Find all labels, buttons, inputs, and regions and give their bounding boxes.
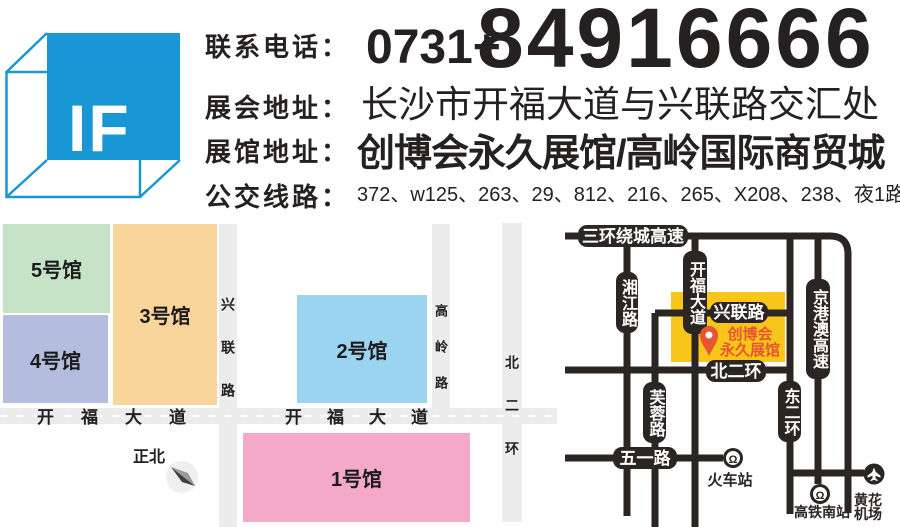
railway-station-label: 火车站 [699,474,761,488]
logo-text: IF [68,91,131,165]
compass-icon [164,459,200,495]
hall-3-label: 3号馆 [139,300,190,329]
hall-2: 2号馆 [297,295,427,403]
badge-north-2nd-ring: 北二环 [706,360,766,382]
airport-icon [864,464,885,485]
badge-kaifu-avenue: 开福大道 [683,251,707,334]
badge-east-2nd-ring: 东二环 [778,381,801,442]
railway-station-icon: Ω [723,448,743,468]
expo-address-value: 长沙市开福大道与兴联路交汇处 [361,86,879,123]
venue-name: 创博会 永久展馆 [718,327,782,359]
badge-jinggangao-expressway: 京港澳高速 [806,279,830,379]
phone-label: 联系电话： [205,34,350,60]
hall-4: 4号馆 [3,315,108,403]
svg-text:Ω: Ω [729,454,738,466]
road-label-kaifu-east: 开福大道 [285,409,453,426]
hall-5-label: 5号馆 [31,254,82,283]
badge-furong-road: 芙蓉路 [643,382,666,443]
venue-address-label: 展馆地址： [205,139,350,165]
north-label: 正北 [133,450,165,466]
expo-address-label: 展会地址： [205,95,350,121]
badge-wuyi-road: 五一路 [613,447,677,469]
hsr-station-label: 高铁南站 [791,505,853,519]
venue-name-line1: 创博会 [718,327,782,343]
road-label-kaifu-west: 开福大道 [37,409,213,426]
phone-number: 84916666 [477,0,875,80]
badge-xinglian-road: 兴联路 [710,302,768,323]
road-label-beierhuan: 北二环 [505,355,519,484]
hall-3: 3号馆 [113,224,217,405]
hall-2-label: 2号馆 [336,335,387,364]
hsr-station-icon: Ω [810,484,830,504]
airport-label: 黄花 机场 [854,493,894,521]
airport-label-line1: 黄花 [854,493,894,507]
badge-sanhuan-expressway: 三环绕城高速 [578,225,688,247]
airport-label-line2: 机场 [854,507,894,521]
hall-1: 1号馆 [243,433,470,522]
road-label-gaoling: 高岭路 [434,304,447,412]
if-cube-logo: IF [5,15,183,207]
badge-xiangjiang-road: 湘江路 [616,272,638,333]
area-map: Ω Ω 三环绕城高速 湘江路 开福大道 兴联路 京港澳高速 北二环 芙蓉路 五一… [560,215,900,527]
hall-4-label: 4号馆 [30,345,81,374]
road-label-xinglian: 兴联路 [221,297,235,426]
flyer-page: IF 联系电话： 0731+ 84916666 展会地址： 长沙市开福大道与兴联… [0,0,900,527]
svg-text:Ω: Ω [816,490,825,502]
hall-5: 5号馆 [3,224,110,313]
location-pin-icon [698,323,720,357]
venue-name-line2: 永久展馆 [718,343,782,359]
bus-lines-label: 公交线路： [205,184,350,210]
bus-lines-value: 372、w125、263、29、812、216、265、X208、238、夜1路 [357,185,900,205]
hall-1-label: 1号馆 [331,463,382,492]
venue-address-value: 创博会永久展馆/高岭国际商贸城 [357,135,885,173]
